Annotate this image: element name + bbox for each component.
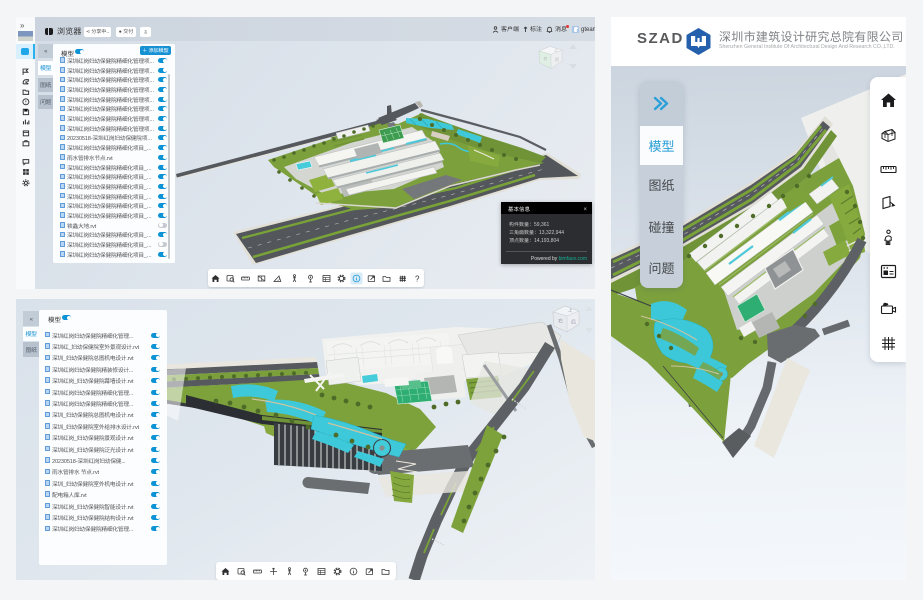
svg-text:后: 后 bbox=[571, 319, 576, 326]
svg-text:右: 右 bbox=[558, 318, 563, 325]
svg-text:后: 后 bbox=[555, 57, 559, 63]
svg-text:右: 右 bbox=[544, 56, 548, 62]
svg-text:?: ? bbox=[415, 274, 420, 283]
